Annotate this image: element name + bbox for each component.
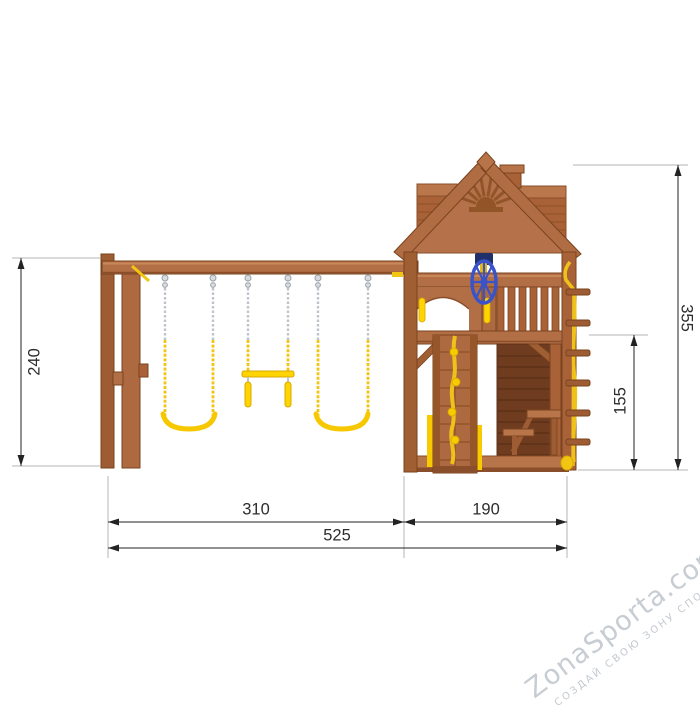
playground-dimension-diagram: 240 355 155 310 190 525 ZonaSporta.com С… xyxy=(0,0,700,700)
steering-wheel xyxy=(472,261,496,303)
swing-chains xyxy=(165,288,368,416)
under-deck-wall xyxy=(497,344,552,468)
swing-hangers xyxy=(162,275,371,287)
tower-upper-level xyxy=(404,253,576,344)
rope-ladder-knob xyxy=(561,456,573,470)
belt-swing-left xyxy=(163,414,215,429)
swing-beam xyxy=(102,261,418,274)
dim-label-under-deck-height: 155 xyxy=(612,387,631,415)
tower-roof xyxy=(394,152,581,261)
trapeze-with-rings xyxy=(242,371,294,407)
deck-railing xyxy=(497,287,559,331)
swing-end-posts xyxy=(101,254,148,468)
dim-label-swing-height: 240 xyxy=(26,348,45,376)
playground-drawing xyxy=(0,0,700,700)
swing-section xyxy=(101,254,418,468)
dim-label-total-width: 525 xyxy=(323,527,351,546)
beam-yellow-bracket xyxy=(392,272,403,277)
tower-post-left xyxy=(404,252,417,472)
climbing-wall xyxy=(433,335,477,473)
dim-label-total-height: 355 xyxy=(677,304,696,332)
belt-swing-right xyxy=(316,414,368,429)
dim-label-swing-width: 310 xyxy=(242,501,270,520)
dim-label-tower-width: 190 xyxy=(472,501,500,520)
safety-handle-left xyxy=(419,298,425,322)
